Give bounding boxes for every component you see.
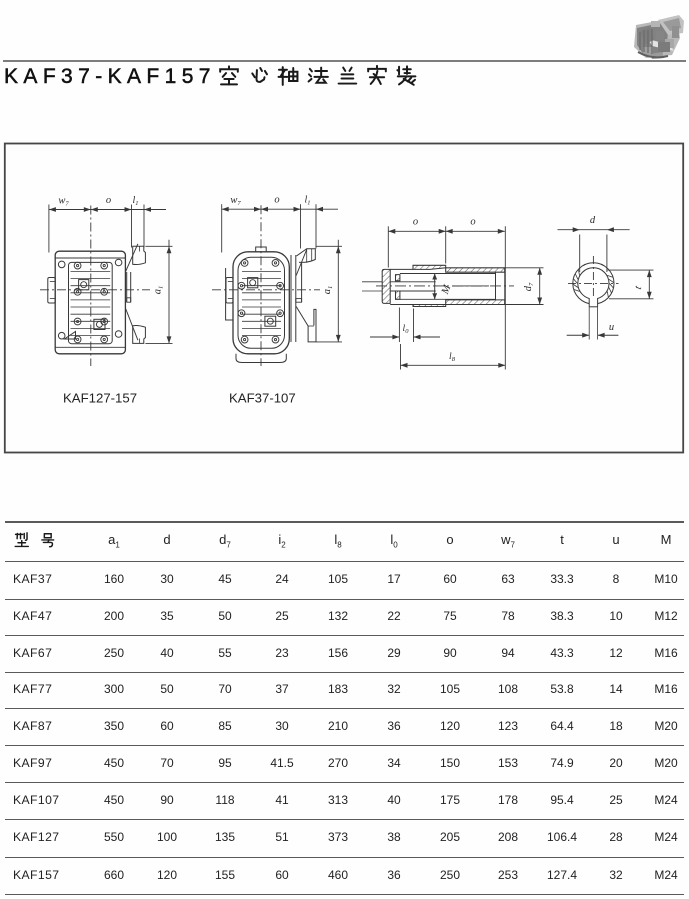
svg-text:t: t bbox=[633, 284, 645, 291]
svg-text:o: o bbox=[413, 217, 418, 228]
svg-text:o: o bbox=[106, 195, 111, 206]
svg-text:o: o bbox=[470, 217, 475, 228]
svg-text:l1: l1 bbox=[132, 195, 138, 207]
svg-text:l1: l1 bbox=[304, 195, 310, 207]
svg-text:d7: d7 bbox=[523, 282, 535, 291]
svg-text:KAF37-107: KAF37-107 bbox=[229, 391, 296, 406]
svg-text:o: o bbox=[274, 195, 279, 206]
svg-text:M: M bbox=[440, 282, 454, 296]
svg-text:a1: a1 bbox=[322, 286, 334, 295]
svg-text:d: d bbox=[590, 215, 596, 226]
svg-text:KAF127-157: KAF127-157 bbox=[63, 391, 137, 406]
svg-text:w7: w7 bbox=[230, 195, 241, 207]
svg-text:l8: l8 bbox=[449, 352, 456, 363]
svg-text:w7: w7 bbox=[58, 196, 69, 208]
svg-text:u: u bbox=[609, 322, 614, 333]
svg-text:l0: l0 bbox=[403, 324, 410, 335]
svg-text:a1: a1 bbox=[153, 286, 165, 295]
